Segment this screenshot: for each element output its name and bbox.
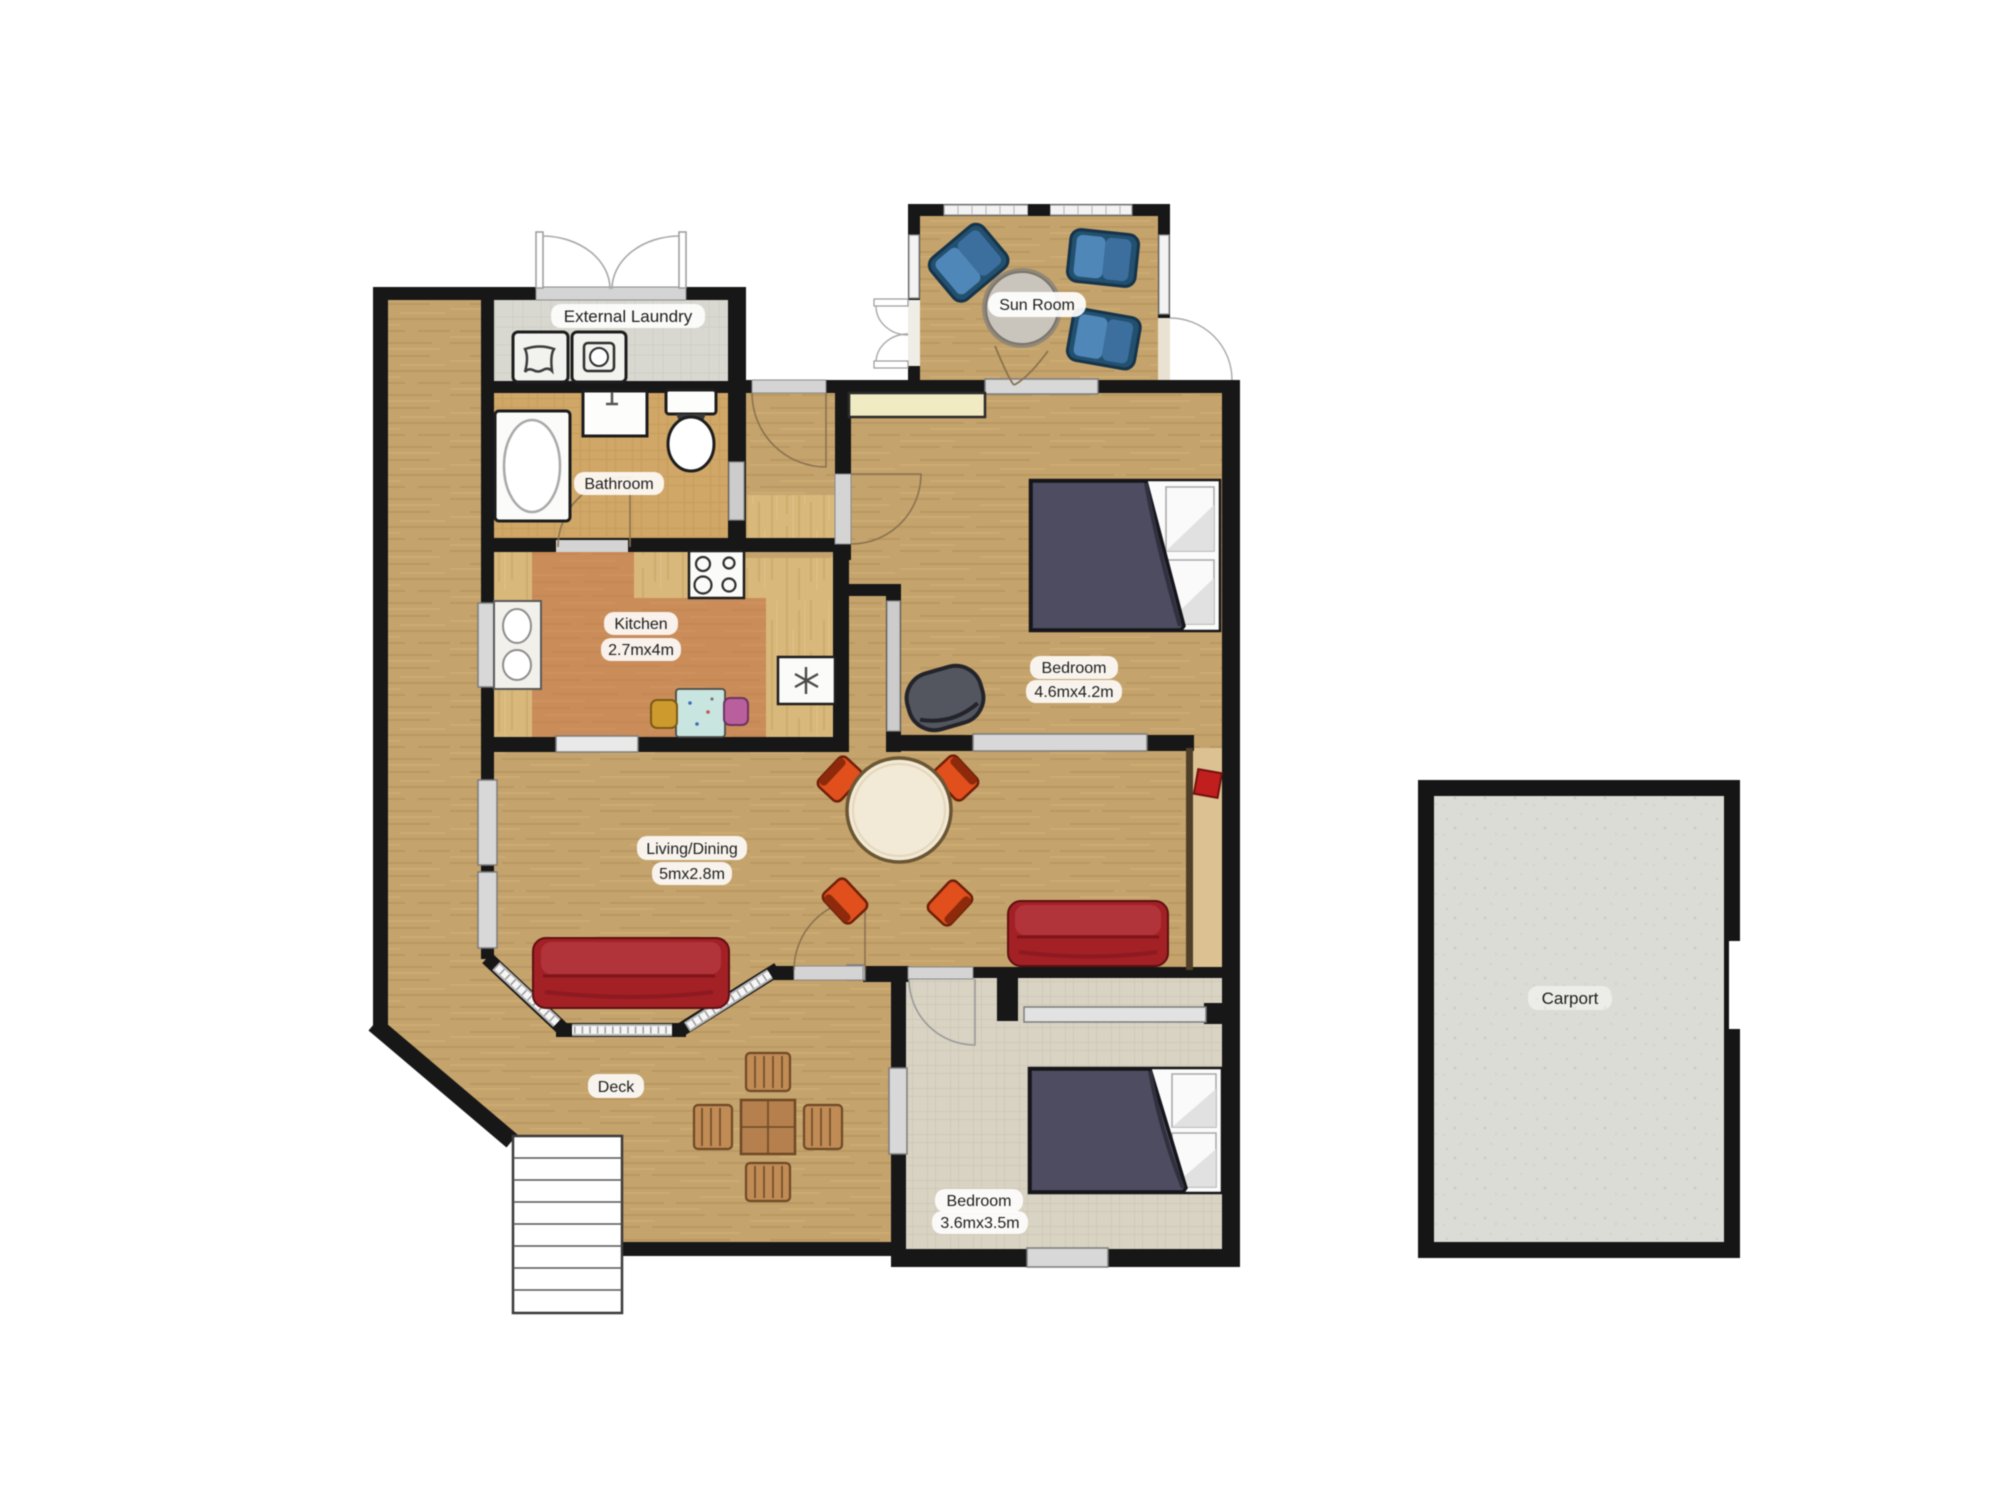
svg-text:3.6mx3.5m: 3.6mx3.5m (940, 1215, 1019, 1232)
svg-text:Carport: Carport (1542, 989, 1599, 1008)
svg-text:Bedroom: Bedroom (1042, 660, 1107, 677)
svg-text:Bedroom: Bedroom (947, 1193, 1012, 1210)
svg-text:Kitchen: Kitchen (614, 616, 667, 633)
svg-text:Deck: Deck (598, 1079, 635, 1096)
svg-text:External Laundry: External Laundry (564, 307, 693, 326)
svg-text:Bathroom: Bathroom (584, 476, 653, 493)
svg-text:2.7mx4m: 2.7mx4m (608, 642, 674, 659)
svg-text:Living/Dining: Living/Dining (646, 841, 738, 858)
svg-text:4.6mx4.2m: 4.6mx4.2m (1034, 684, 1113, 701)
svg-text:Sun Room: Sun Room (999, 297, 1075, 314)
svg-text:5mx2.8m: 5mx2.8m (659, 866, 725, 883)
